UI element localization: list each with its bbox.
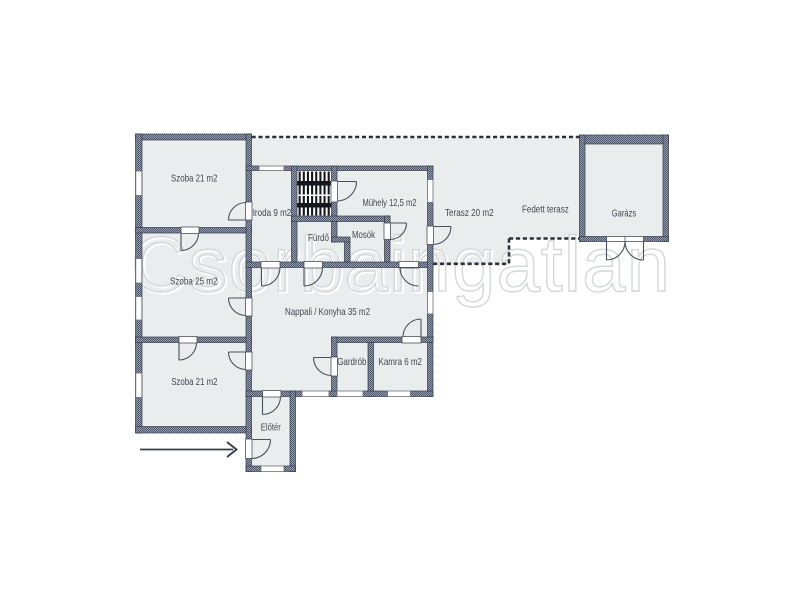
svg-text:Garázs: Garázs [612, 208, 636, 220]
svg-text:Mühely 12,5 m2: Mühely 12,5 m2 [363, 197, 417, 209]
svg-text:Fürdő: Fürdő [308, 232, 329, 244]
svg-text:Mosók: Mosók [352, 229, 376, 241]
svg-text:Szoba 25 m2: Szoba 25 m2 [170, 276, 218, 288]
svg-text:Nappali / Konyha 35 m2: Nappali / Konyha 35 m2 [285, 306, 370, 318]
svg-text:Fedett terasz: Fedett terasz [522, 204, 569, 216]
svg-text:Szoba 21 m2: Szoba 21 m2 [171, 376, 217, 388]
svg-text:Terasz 20 m2: Terasz 20 m2 [445, 207, 494, 219]
svg-text:Gardrób: Gardrób [337, 356, 366, 368]
svg-text:Kamra 6 m2: Kamra 6 m2 [379, 356, 423, 368]
svg-text:Szoba 21 m2: Szoba 21 m2 [171, 172, 218, 184]
svg-text:Iroda 9 m2: Iroda 9 m2 [253, 207, 292, 219]
svg-text:Előtér: Előtér [261, 421, 281, 433]
